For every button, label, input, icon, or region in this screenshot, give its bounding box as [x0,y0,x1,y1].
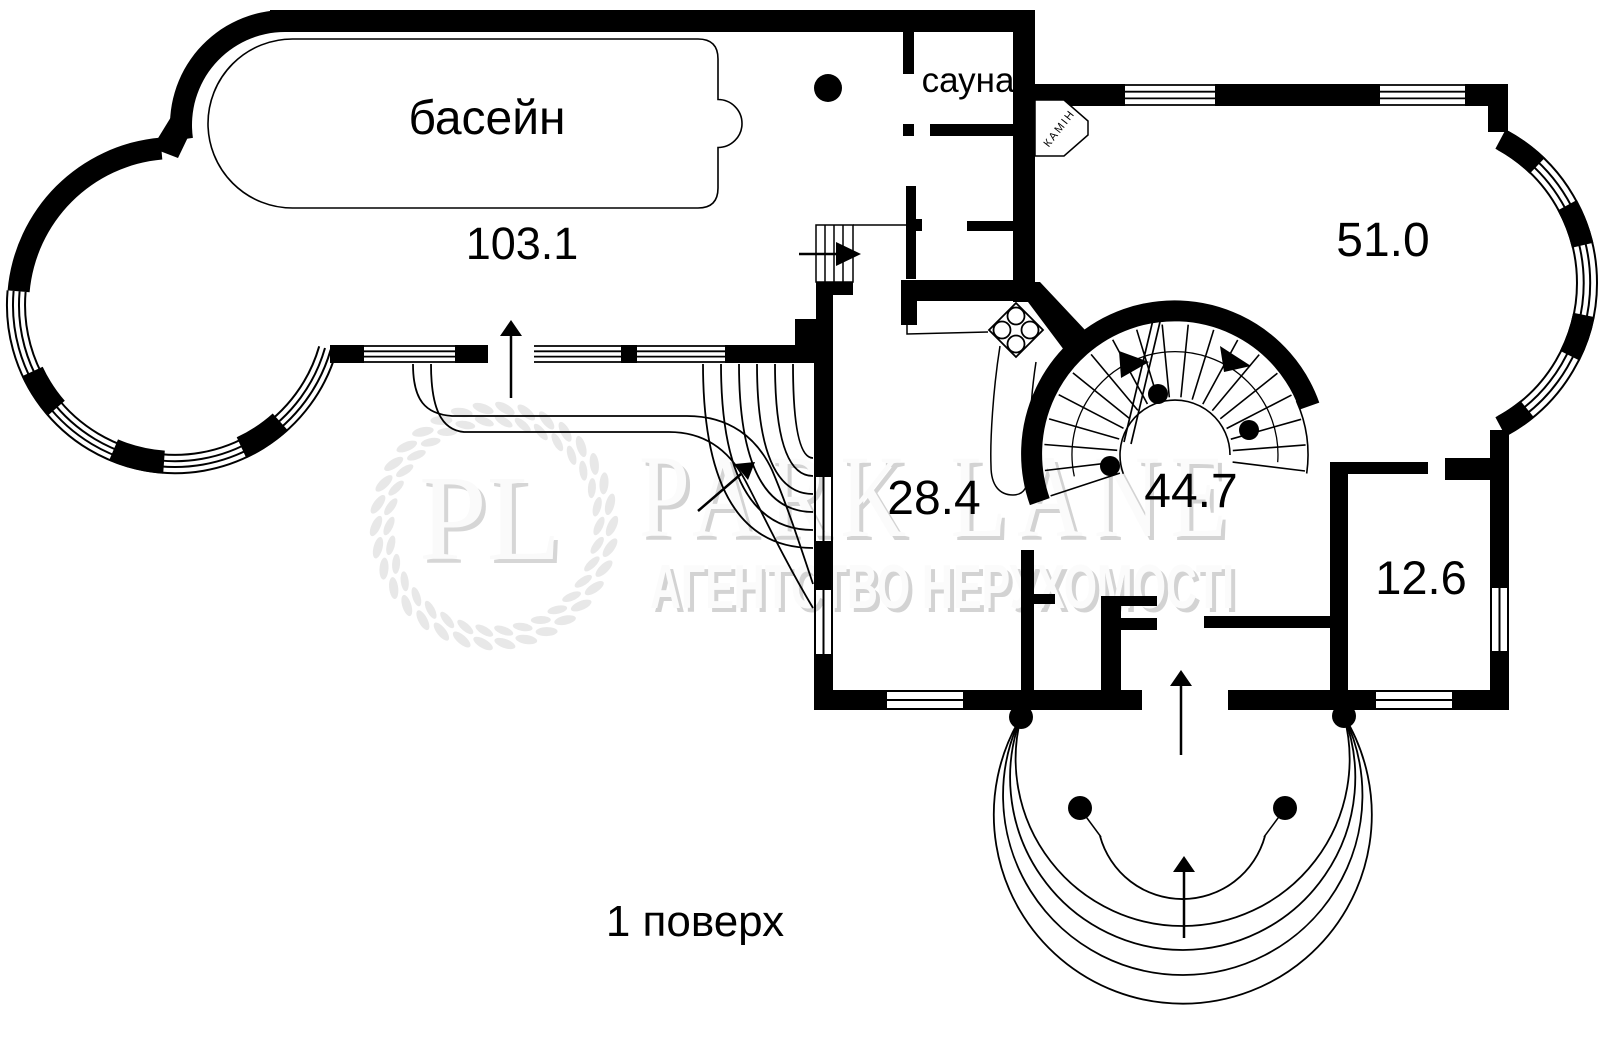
svg-text:12.6: 12.6 [1375,551,1466,604]
svg-text:АГЕНТСТВО НЕРУХОМОСТІ: АГЕНТСТВО НЕРУХОМОСТІ [650,553,1234,622]
svg-text:сауна: сауна [922,61,1015,100]
svg-text:51.0: 51.0 [1336,214,1429,267]
svg-text:103.1: 103.1 [466,218,579,269]
svg-text:PL: PL [419,451,561,586]
svg-text:44.7: 44.7 [1144,465,1237,518]
svg-text:28.4: 28.4 [887,472,980,525]
svg-text:1 поверх: 1 поверх [606,897,784,946]
svg-text:басейн: басейн [408,92,565,145]
